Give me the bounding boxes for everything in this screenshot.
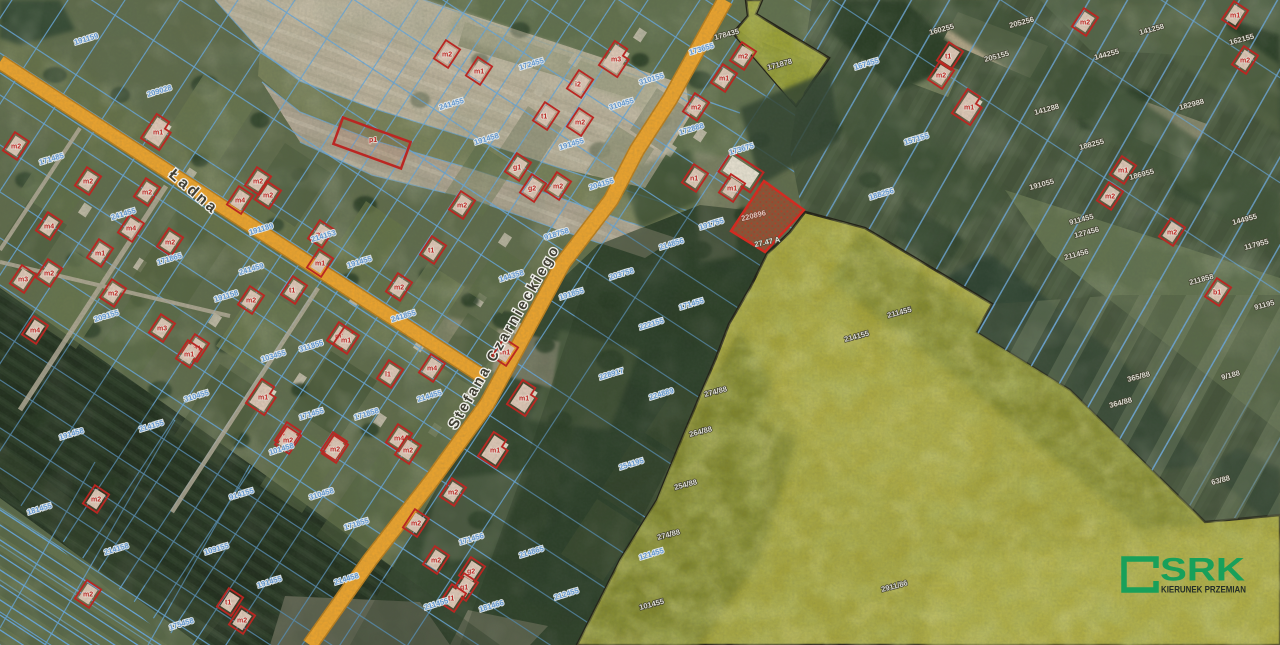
svg-text:KIERUNEK PRZEMIAN: KIERUNEK PRZEMIAN bbox=[1161, 585, 1246, 595]
svg-text:SRK: SRK bbox=[1160, 552, 1245, 588]
